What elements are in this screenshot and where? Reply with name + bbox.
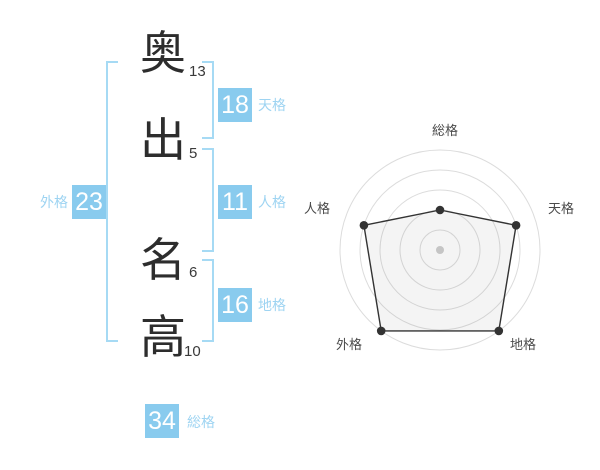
radar-data-polygon [364, 210, 516, 331]
stroke-count-2: 5 [189, 146, 197, 161]
tenkaku-value-box: 18 [218, 88, 252, 122]
name-char-4: 高 [139, 314, 187, 360]
jinkaku-bracket [202, 148, 214, 252]
tenkaku-bracket [202, 61, 214, 139]
seimei-handan-panel: 奥 13 出 5 名 6 高 10 外格 23 18 天格 11 人格 16 地… [0, 0, 600, 470]
name-char-3: 名 [139, 237, 187, 283]
stroke-count-4: 10 [184, 344, 201, 359]
radar-data-point [377, 327, 386, 336]
chikaku-value-box: 16 [218, 288, 252, 322]
radar-data-point [512, 221, 521, 230]
gaikaku-bracket [106, 61, 118, 342]
tenkaku-label: 天格 [258, 98, 286, 112]
radar-center-dot [436, 246, 444, 254]
name-char-1: 奥 [139, 30, 187, 76]
gaikaku-value-box: 23 [72, 185, 106, 219]
jinkaku-value-box: 11 [218, 185, 252, 219]
radar-data-point [495, 327, 504, 336]
jinkaku-label: 人格 [258, 195, 286, 209]
name-char-2: 出 [139, 117, 187, 163]
radar-axis-label: 総格 [432, 123, 458, 138]
radar-axis-label: 天格 [548, 201, 574, 216]
chikaku-bracket [202, 259, 214, 342]
radar-chart-svg: 総格天格地格外格人格 [297, 110, 597, 370]
radar-axis-label: 人格 [304, 201, 330, 216]
stroke-count-3: 6 [189, 265, 197, 280]
soukaku-value-box: 34 [145, 404, 179, 438]
radar-data-point [360, 221, 369, 230]
soukaku-label: 総格 [187, 415, 215, 429]
radar-axis-label: 地格 [510, 337, 536, 352]
chikaku-label: 地格 [258, 298, 286, 312]
radar-axis-label: 外格 [336, 337, 362, 352]
gaikaku-label: 外格 [40, 195, 68, 209]
kaku-radar-chart: 総格天格地格外格人格 [297, 110, 597, 370]
radar-data-point [436, 206, 445, 215]
